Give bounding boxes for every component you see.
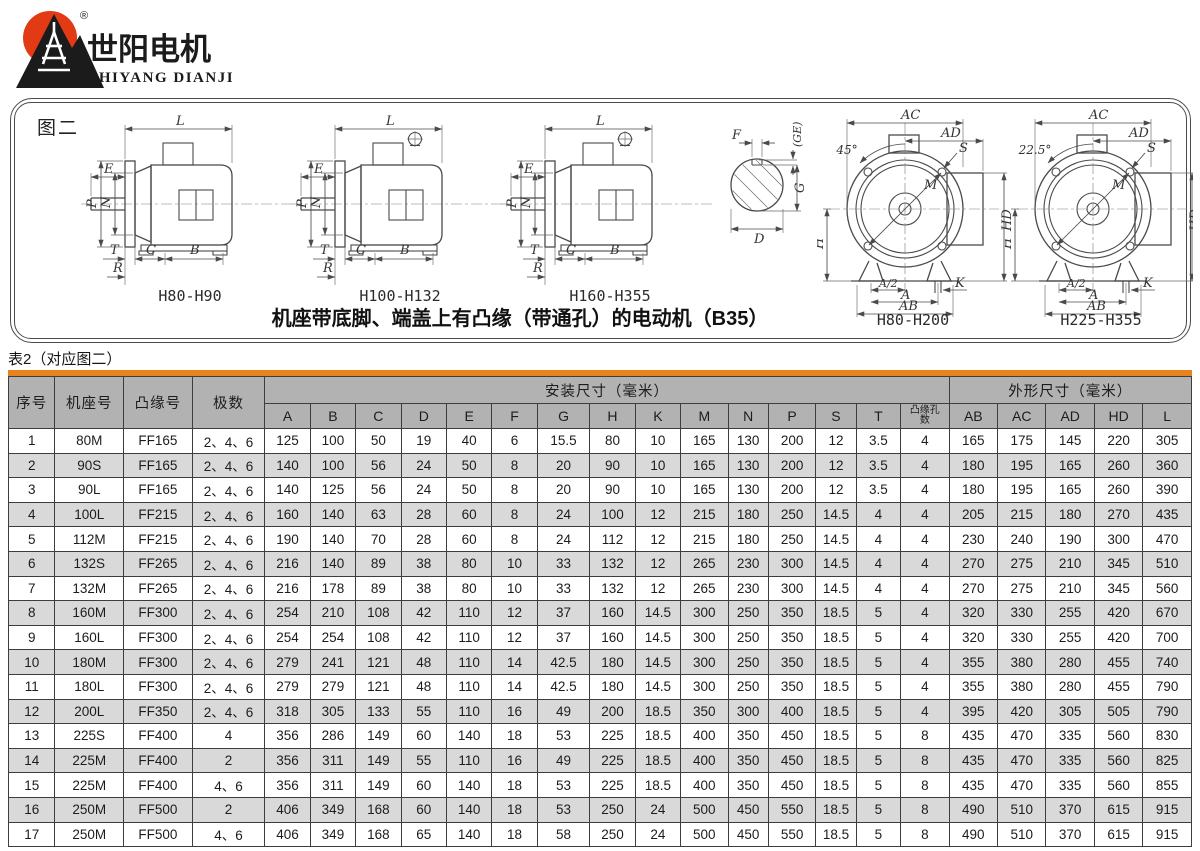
- table-cell: 505: [1094, 699, 1142, 724]
- table-cell: 250: [728, 601, 768, 626]
- table-cell: 320: [949, 601, 997, 626]
- table-cell: FF265: [124, 551, 193, 576]
- table-cell: 18: [492, 773, 537, 798]
- table-cell: 38: [401, 551, 446, 576]
- table-cell: 4: [901, 551, 950, 576]
- dimension-table: 序号 机座号 凸缘号 极数 安装尺寸（毫米） 外形尺寸（毫米） ABCDEFGH…: [8, 376, 1192, 847]
- table-cell: 450: [768, 724, 815, 749]
- table-cell: 450: [768, 773, 815, 798]
- table-cell: 180: [728, 502, 768, 527]
- table-cell: 180: [590, 674, 635, 699]
- table-cell: 168: [356, 822, 401, 847]
- column-header: AC: [998, 404, 1046, 429]
- table-cell: 149: [356, 724, 401, 749]
- dim-label-GE: (GE): [791, 122, 804, 147]
- table-cell: 279: [265, 674, 310, 699]
- table-cell: 140: [265, 478, 310, 503]
- figure-box: 图二: [10, 98, 1191, 343]
- table-cell: 350: [728, 748, 768, 773]
- table-cell: 220: [1094, 429, 1142, 454]
- table-cell: FF400: [124, 773, 193, 798]
- table-cell: 14.5: [816, 527, 856, 552]
- table-cell: 12: [635, 502, 680, 527]
- table-cell: 435: [949, 773, 997, 798]
- table-cell: 55: [401, 699, 446, 724]
- column-header: F: [492, 404, 537, 429]
- table-cell: 110: [446, 601, 491, 626]
- table-row: 12200LFF3502、4、631830513355110164920018.…: [9, 699, 1192, 724]
- table-cell: 140: [446, 773, 491, 798]
- table-cell: 12: [492, 601, 537, 626]
- table-cell: 125: [265, 429, 310, 454]
- table-cell: 14.5: [816, 502, 856, 527]
- table-cell: 560: [1143, 576, 1192, 601]
- table-cell: 225M: [55, 773, 124, 798]
- table-cell: 149: [356, 773, 401, 798]
- brand-name-en: SHIYANG DIANJI: [89, 70, 234, 86]
- table-cell: 280: [1046, 650, 1094, 675]
- table-cell: 225: [590, 773, 635, 798]
- table-cell: 225: [590, 748, 635, 773]
- table-cell: 2、4、6: [192, 478, 265, 503]
- table-cell: 275: [998, 551, 1046, 576]
- table-cell: 178: [310, 576, 355, 601]
- table-cell: 100: [310, 429, 355, 454]
- table-cell: 215: [681, 502, 728, 527]
- table-cell: 5: [9, 527, 55, 552]
- table-cell: 270: [949, 551, 997, 576]
- table-cell: 18.5: [816, 748, 856, 773]
- table-cell: 250: [728, 650, 768, 675]
- table-cell: 200: [768, 453, 815, 478]
- table-cell: 8: [901, 748, 950, 773]
- table-cell: 560: [1094, 724, 1142, 749]
- table-cell: 165: [1046, 478, 1094, 503]
- table-cell: 65: [401, 822, 446, 847]
- table-cell: 149: [356, 748, 401, 773]
- table-cell: 2、4、6: [192, 650, 265, 675]
- table-cell: 350: [768, 625, 815, 650]
- table-cell: 58: [537, 822, 589, 847]
- table-cell: 33: [537, 576, 589, 601]
- table-row: 4100LFF2152、4、61601406328608241001221518…: [9, 502, 1192, 527]
- dim-label-G: G: [793, 183, 808, 193]
- table-cell: 18: [492, 822, 537, 847]
- table-cell: 24: [537, 502, 589, 527]
- table-cell: 254: [265, 601, 310, 626]
- column-header: C: [356, 404, 401, 429]
- table-cell: 4: [9, 502, 55, 527]
- table-cell: 254: [310, 625, 355, 650]
- table-cell: 370: [1046, 822, 1094, 847]
- table-cell: 8: [9, 601, 55, 626]
- brand-logo-graphic: ® 世阳电机 SHIYANG DIANJI: [10, 2, 310, 98]
- table-cell: 490: [949, 797, 997, 822]
- table-cell: 133: [356, 699, 401, 724]
- table-cell: 356: [265, 773, 310, 798]
- table-cell: 2: [9, 453, 55, 478]
- table-cell: 12: [816, 429, 856, 454]
- table-cell: 216: [265, 576, 310, 601]
- table-cell: 18.5: [816, 699, 856, 724]
- drawing-side-view-1: [81, 114, 293, 285]
- table-cell: FF400: [124, 724, 193, 749]
- table-cell: 790: [1143, 674, 1192, 699]
- table-cell: 318: [265, 699, 310, 724]
- table-cell: 11: [9, 674, 55, 699]
- table-title: 表2（对应图二）: [8, 348, 121, 369]
- table-cell: 255: [1046, 625, 1094, 650]
- table-cell: 80: [446, 576, 491, 601]
- table-cell: 550: [768, 797, 815, 822]
- table-cell: 18: [492, 724, 537, 749]
- table-cell: 180L: [55, 674, 124, 699]
- table-cell: 3.5: [856, 429, 900, 454]
- table-cell: 18.5: [816, 601, 856, 626]
- table-cell: FF350: [124, 699, 193, 724]
- table-cell: 60: [401, 797, 446, 822]
- table-row: 15225MFF4004、635631114960140185322518.54…: [9, 773, 1192, 798]
- column-header: K: [635, 404, 680, 429]
- table-cell: 286: [310, 724, 355, 749]
- table-cell: 345: [1094, 576, 1142, 601]
- table-cell: 42.5: [537, 674, 589, 699]
- table-row: 13225SFF400435628614960140185322518.5400…: [9, 724, 1192, 749]
- table-cell: 406: [265, 822, 310, 847]
- table-cell: 60: [446, 502, 491, 527]
- table-cell: 455: [1094, 674, 1142, 699]
- table-cell: 90: [590, 453, 635, 478]
- table-cell: 1: [9, 429, 55, 454]
- table-cell: 165: [1046, 453, 1094, 478]
- table-cell: 230: [728, 551, 768, 576]
- table-cell: 250: [768, 502, 815, 527]
- table-cell: 5: [856, 724, 900, 749]
- table-cell: 20: [537, 453, 589, 478]
- table-cell: 240: [998, 527, 1046, 552]
- table-cell: 4、6: [192, 773, 265, 798]
- table-cell: 10: [635, 429, 680, 454]
- table-cell: 435: [949, 748, 997, 773]
- table-row: 11180LFF3002、4、6279279121481101442.51801…: [9, 674, 1192, 699]
- table-row: 8160MFF3002、4、625421010842110123716014.5…: [9, 601, 1192, 626]
- table-cell: 12: [635, 576, 680, 601]
- table-cell: 2、4、6: [192, 429, 265, 454]
- table-cell: 18: [492, 797, 537, 822]
- table-cell: 24: [401, 453, 446, 478]
- table-cell: 400: [681, 724, 728, 749]
- table-cell: 210: [1046, 551, 1094, 576]
- table-cell: 28: [401, 527, 446, 552]
- drawing-front-view-2: [1000, 108, 1193, 317]
- table-row: 14225MFF400235631114955110164922518.5400…: [9, 748, 1192, 773]
- table-cell: 53: [537, 773, 589, 798]
- table-cell: 250: [590, 822, 635, 847]
- table-cell: 12: [635, 551, 680, 576]
- angle-label-225: 22.5°: [1018, 143, 1052, 157]
- table-cell: 250: [728, 674, 768, 699]
- table-cell: 17: [9, 822, 55, 847]
- table-cell: 14.5: [635, 625, 680, 650]
- table-cell: 9: [9, 625, 55, 650]
- table-cell: 350: [768, 601, 815, 626]
- column-header: H: [590, 404, 635, 429]
- table-cell: 270: [949, 576, 997, 601]
- table-cell: 420: [1094, 601, 1142, 626]
- table-cell: 250M: [55, 822, 124, 847]
- table-cell: 175: [998, 429, 1046, 454]
- table-cell: 165: [681, 429, 728, 454]
- column-header: AD: [1046, 404, 1094, 429]
- table-cell: 225S: [55, 724, 124, 749]
- table-cell: 330: [998, 625, 1046, 650]
- drawing-side-view-3: [501, 114, 713, 285]
- column-header: N: [728, 404, 768, 429]
- table-cell: 16: [492, 699, 537, 724]
- table-cell: 18.5: [816, 797, 856, 822]
- table-cell: 450: [768, 748, 815, 773]
- table-cell: 200: [768, 478, 815, 503]
- table-cell: 4: [901, 625, 950, 650]
- dim-label-F: F: [731, 128, 742, 143]
- table-cell: 349: [310, 822, 355, 847]
- table-cell: 24: [635, 797, 680, 822]
- table-cell: 305: [310, 699, 355, 724]
- table-cell: 14.5: [816, 576, 856, 601]
- table-cell: 14: [492, 650, 537, 675]
- table-cell: 250M: [55, 797, 124, 822]
- table-cell: 305: [1046, 699, 1094, 724]
- table-cell: 110: [446, 650, 491, 675]
- table-cell: 160: [590, 625, 635, 650]
- table-cell: 12: [9, 699, 55, 724]
- table-cell: 10: [635, 453, 680, 478]
- column-header: E: [446, 404, 491, 429]
- table-cell: 370: [1046, 797, 1094, 822]
- table-cell: 49: [537, 699, 589, 724]
- table-cell: 200: [768, 429, 815, 454]
- figure-inner-frame: 图二: [14, 102, 1187, 339]
- table-cell: 350: [728, 773, 768, 798]
- table-cell: 4: [856, 502, 900, 527]
- table-cell: 37: [537, 601, 589, 626]
- table-cell: 140: [265, 453, 310, 478]
- table-cell: 53: [537, 724, 589, 749]
- table-cell: 18.5: [635, 699, 680, 724]
- table-cell: 49: [537, 748, 589, 773]
- table-cell: 108: [356, 625, 401, 650]
- table-cell: 100L: [55, 502, 124, 527]
- table-cell: 190: [265, 527, 310, 552]
- table-cell: 700: [1143, 625, 1192, 650]
- table-cell: FF165: [124, 429, 193, 454]
- table-cell: 300: [681, 674, 728, 699]
- table-cell: 270: [1094, 502, 1142, 527]
- table-cell: 435: [1143, 502, 1192, 527]
- table-cell: 18.5: [816, 773, 856, 798]
- table-cell: 2、4、6: [192, 601, 265, 626]
- table-cell: 254: [265, 625, 310, 650]
- table-cell: 8: [492, 453, 537, 478]
- drawing-side-view-2: [291, 114, 503, 285]
- table-cell: 140: [310, 502, 355, 527]
- table-cell: 140: [446, 822, 491, 847]
- table-cell: 18.5: [635, 748, 680, 773]
- table-cell: FF165: [124, 453, 193, 478]
- table-cell: 90S: [55, 453, 124, 478]
- table-cell: 108: [356, 601, 401, 626]
- table-cell: 10: [9, 650, 55, 675]
- table-cell: 355: [949, 650, 997, 675]
- table-cell: 16: [9, 797, 55, 822]
- table-cell: 15: [9, 773, 55, 798]
- drawing-caption-5: H225-H355: [1060, 311, 1141, 329]
- table-cell: 825: [1143, 748, 1192, 773]
- table-cell: 400: [681, 748, 728, 773]
- table-cell: 2、4、6: [192, 576, 265, 601]
- table-cell: 180: [949, 478, 997, 503]
- table-cell: FF300: [124, 674, 193, 699]
- table-cell: 210: [1046, 576, 1094, 601]
- table-cell: 38: [401, 576, 446, 601]
- table-cell: 740: [1143, 650, 1192, 675]
- table-cell: 132: [590, 576, 635, 601]
- column-header: T: [856, 404, 900, 429]
- table-cell: 140: [446, 724, 491, 749]
- table-cell: 8: [492, 478, 537, 503]
- table-cell: 670: [1143, 601, 1192, 626]
- table-cell: 380: [998, 650, 1046, 675]
- table-cell: 470: [998, 748, 1046, 773]
- table-cell: 28: [401, 502, 446, 527]
- table-cell: 305: [1143, 429, 1192, 454]
- table-cell: 18.5: [635, 724, 680, 749]
- table-cell: 225M: [55, 748, 124, 773]
- table-cell: 50: [446, 453, 491, 478]
- table-cell: 356: [265, 724, 310, 749]
- table-cell: 4: [901, 478, 950, 503]
- table-cell: 48: [401, 650, 446, 675]
- table-cell: 550: [768, 822, 815, 847]
- table-cell: 300: [768, 551, 815, 576]
- table-cell: 8: [901, 822, 950, 847]
- table-row: 5112MFF2152、4、61901407028608241121221518…: [9, 527, 1192, 552]
- table-cell: 4: [856, 576, 900, 601]
- table-cell: 490: [949, 822, 997, 847]
- table-cell: 100: [590, 502, 635, 527]
- table-cell: 4: [901, 453, 950, 478]
- table-cell: 311: [310, 748, 355, 773]
- table-cell: 190: [1046, 527, 1094, 552]
- table-cell: 2、4、6: [192, 699, 265, 724]
- table-cell: 265: [681, 551, 728, 576]
- table-cell: 160M: [55, 601, 124, 626]
- table-row: 7132MFF2652、4、62161788938801033132122652…: [9, 576, 1192, 601]
- table-cell: 349: [310, 797, 355, 822]
- table-cell: 420: [998, 699, 1046, 724]
- table-cell: 356: [265, 748, 310, 773]
- table-cell: 250: [590, 797, 635, 822]
- table-cell: 10: [635, 478, 680, 503]
- table-cell: 420: [1094, 625, 1142, 650]
- table-cell: 300: [768, 576, 815, 601]
- table-cell: 80: [590, 429, 635, 454]
- table-row: 290SFF1652、4、614010056245082090101651302…: [9, 453, 1192, 478]
- table-row: 180MFF1652、4、6125100501940615.5801016513…: [9, 429, 1192, 454]
- table-cell: 380: [998, 674, 1046, 699]
- table-cell: 510: [998, 822, 1046, 847]
- table-cell: 360: [1143, 453, 1192, 478]
- table-cell: 255: [1046, 601, 1094, 626]
- table-cell: 4: [856, 551, 900, 576]
- table-cell: 145: [1046, 429, 1094, 454]
- table-cell: 3: [9, 478, 55, 503]
- table-cell: 130: [728, 478, 768, 503]
- table-cell: 435: [949, 724, 997, 749]
- table-cell: 18.5: [816, 650, 856, 675]
- table-cell: 125: [310, 478, 355, 503]
- table-cell: 89: [356, 551, 401, 576]
- table-cell: 15.5: [537, 429, 589, 454]
- table-cell: 42: [401, 625, 446, 650]
- table-cell: 300: [681, 625, 728, 650]
- table-cell: 53: [537, 797, 589, 822]
- table-cell: 5: [856, 773, 900, 798]
- table-cell: 400: [681, 773, 728, 798]
- col-header-flange: 凸缘号: [124, 377, 193, 429]
- table-cell: 4: [901, 576, 950, 601]
- table-cell: 450: [728, 797, 768, 822]
- table-row: 10180MFF3002、4、6279241121481101442.51801…: [9, 650, 1192, 675]
- table-cell: 18.5: [816, 724, 856, 749]
- table-cell: 510: [1143, 551, 1192, 576]
- table-cell: 265: [681, 576, 728, 601]
- table-cell: 5: [856, 699, 900, 724]
- table-cell: 260: [1094, 478, 1142, 503]
- table-cell: 89: [356, 576, 401, 601]
- table-cell: 250: [768, 527, 815, 552]
- table-cell: 90L: [55, 478, 124, 503]
- table-cell: 18.5: [635, 773, 680, 798]
- table-cell: 8: [901, 773, 950, 798]
- table-cell: 5: [856, 601, 900, 626]
- column-header: AB: [949, 404, 997, 429]
- table-cell: 110: [446, 625, 491, 650]
- table-cell: 200L: [55, 699, 124, 724]
- table-cell: 615: [1094, 797, 1142, 822]
- table-cell: 2、4、6: [192, 453, 265, 478]
- table-cell: 12: [816, 478, 856, 503]
- table-cell: FF500: [124, 822, 193, 847]
- table-cell: 8: [492, 502, 537, 527]
- table-cell: 8: [901, 724, 950, 749]
- table-cell: 300: [1094, 527, 1142, 552]
- table-cell: 500: [681, 797, 728, 822]
- table-cell: 48: [401, 674, 446, 699]
- table-cell: 205: [949, 502, 997, 527]
- table-cell: 18.5: [816, 822, 856, 847]
- table-cell: 130: [728, 453, 768, 478]
- table-cell: 165: [949, 429, 997, 454]
- table-cell: 42.5: [537, 650, 589, 675]
- table-cell: 160: [590, 601, 635, 626]
- column-header: S: [816, 404, 856, 429]
- table-cell: 7: [9, 576, 55, 601]
- table-cell: 2: [192, 748, 265, 773]
- table-cell: 112M: [55, 527, 124, 552]
- table-cell: 24: [401, 478, 446, 503]
- table-cell: 140: [446, 797, 491, 822]
